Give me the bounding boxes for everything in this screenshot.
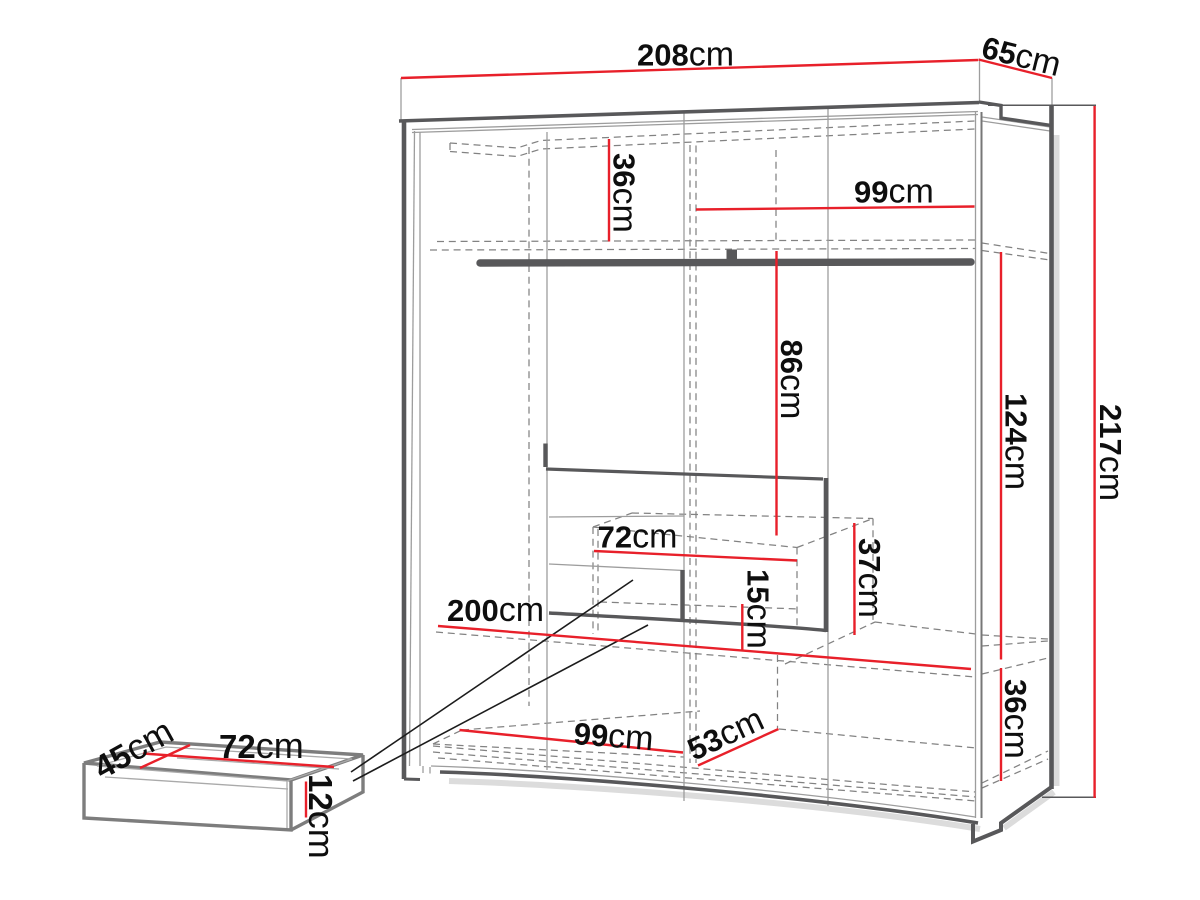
svg-text:36cm: 36cm [606, 153, 644, 233]
svg-text:72cm: 72cm [219, 725, 304, 766]
svg-text:36cm: 36cm [997, 679, 1035, 759]
svg-text:200cm: 200cm [447, 591, 544, 629]
svg-text:12cm: 12cm [301, 774, 342, 859]
svg-text:86cm: 86cm [773, 340, 811, 420]
svg-text:99cm: 99cm [854, 173, 934, 211]
svg-text:124cm: 124cm [998, 393, 1036, 490]
svg-text:15cm: 15cm [740, 569, 778, 649]
svg-text:217cm: 217cm [1092, 404, 1130, 501]
svg-text:208cm: 208cm [637, 36, 734, 74]
svg-text:37cm: 37cm [851, 538, 889, 618]
svg-text:72cm: 72cm [598, 518, 678, 556]
svg-text:99cm: 99cm [572, 714, 655, 758]
